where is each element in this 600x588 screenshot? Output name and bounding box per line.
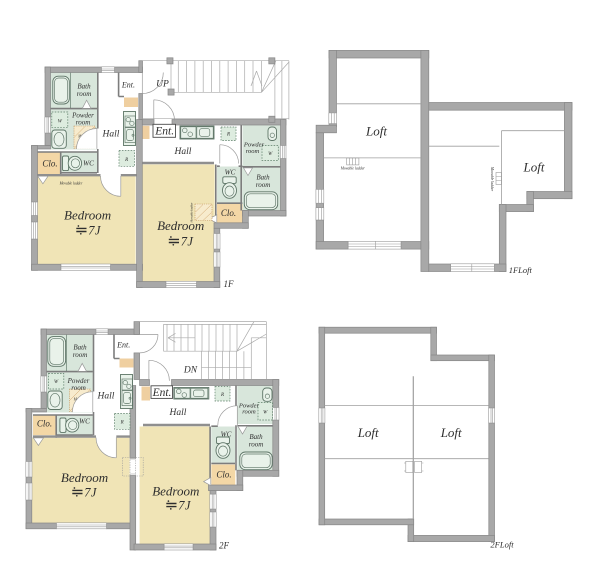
svg-text:1FLoft: 1FLoft [509,265,533,275]
svg-text:room: room [249,441,264,449]
svg-text:Clo.: Clo. [216,470,231,480]
svg-text:room: room [246,148,260,155]
svg-text:Bedroom: Bedroom [61,470,108,485]
svg-text:R: R [124,158,128,163]
svg-text:7J: 7J [88,223,102,237]
svg-text:R: R [120,421,124,426]
svg-text:Ent.: Ent. [152,387,172,399]
svg-text:DN: DN [183,365,198,375]
svg-text:Loft: Loft [440,425,462,440]
svg-text:Clo.: Clo. [37,419,52,429]
svg-text:1F: 1F [224,279,235,289]
svg-text:WC: WC [221,431,232,439]
svg-text:Loft: Loft [523,160,545,175]
svg-text:Ent.: Ent. [121,81,135,90]
svg-text:7J: 7J [181,234,195,248]
svg-text:UP: UP [156,79,169,89]
svg-text:room: room [77,90,92,98]
svg-text:WC: WC [79,418,90,426]
svg-text:Ent.: Ent. [154,126,174,138]
svg-text:Movable ladder: Movable ladder [340,167,366,171]
svg-text:Clo.: Clo. [42,158,57,168]
svg-text:2FLoft: 2FLoft [490,540,514,550]
svg-text:room: room [242,409,256,416]
svg-text:Movable ladder: Movable ladder [490,166,494,192]
svg-text:room: room [71,384,86,392]
svg-text:Ent.: Ent. [116,340,130,349]
svg-text:Hall: Hall [102,130,120,140]
svg-text:2F: 2F [219,541,230,551]
svg-text:Movable ladder: Movable ladder [59,182,83,186]
svg-text:Hall: Hall [97,392,115,402]
svg-text:Bedroom: Bedroom [157,218,204,233]
svg-text:room: room [73,351,88,359]
svg-text:Clo.: Clo. [221,208,236,218]
svg-text:WC: WC [83,160,94,168]
svg-text:WC: WC [225,168,236,176]
svg-text:R: R [220,393,224,398]
svg-text:Hall: Hall [174,147,192,157]
svg-text:room: room [256,181,271,189]
svg-text:R: R [226,133,230,138]
svg-text:7J: 7J [84,485,98,499]
svg-text:Loft: Loft [357,425,379,440]
svg-text:Loft: Loft [365,124,387,139]
svg-text:7J: 7J [178,499,192,513]
svg-text:room: room [76,119,91,127]
svg-text:Bedroom: Bedroom [64,208,111,223]
svg-text:Hall: Hall [169,408,187,418]
svg-text:Bedroom: Bedroom [152,484,199,499]
